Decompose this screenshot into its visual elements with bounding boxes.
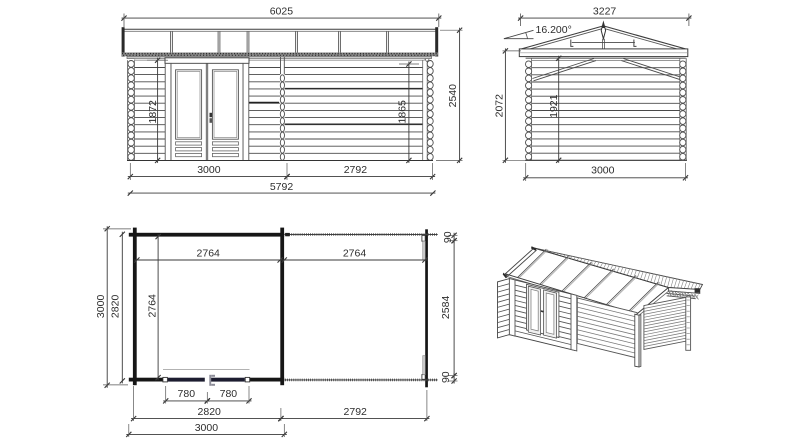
- svg-text:1921: 1921: [548, 94, 560, 118]
- svg-text:3227: 3227: [593, 5, 617, 17]
- svg-text:2540: 2540: [447, 84, 459, 108]
- svg-text:3000: 3000: [197, 164, 221, 176]
- svg-text:780: 780: [220, 388, 238, 400]
- svg-text:3000: 3000: [195, 422, 219, 434]
- svg-text:3000: 3000: [95, 295, 107, 319]
- svg-text:2820: 2820: [109, 295, 121, 319]
- svg-text:16.200°: 16.200°: [536, 24, 572, 36]
- svg-text:1872: 1872: [147, 100, 159, 124]
- svg-text:1865: 1865: [396, 100, 408, 124]
- svg-text:3000: 3000: [591, 164, 615, 176]
- svg-text:6025: 6025: [270, 5, 294, 17]
- svg-text:2764: 2764: [343, 247, 367, 259]
- svg-text:2072: 2072: [493, 94, 505, 118]
- svg-text:780: 780: [178, 388, 196, 400]
- svg-text:5792: 5792: [270, 181, 294, 193]
- svg-text:2764: 2764: [146, 294, 158, 318]
- svg-text:2584: 2584: [440, 296, 452, 320]
- svg-text:90: 90: [440, 371, 452, 383]
- svg-text:2792: 2792: [344, 164, 368, 176]
- svg-text:2792: 2792: [344, 406, 368, 418]
- svg-text:90: 90: [442, 231, 454, 243]
- svg-text:2764: 2764: [197, 247, 221, 259]
- svg-text:2820: 2820: [198, 406, 222, 418]
